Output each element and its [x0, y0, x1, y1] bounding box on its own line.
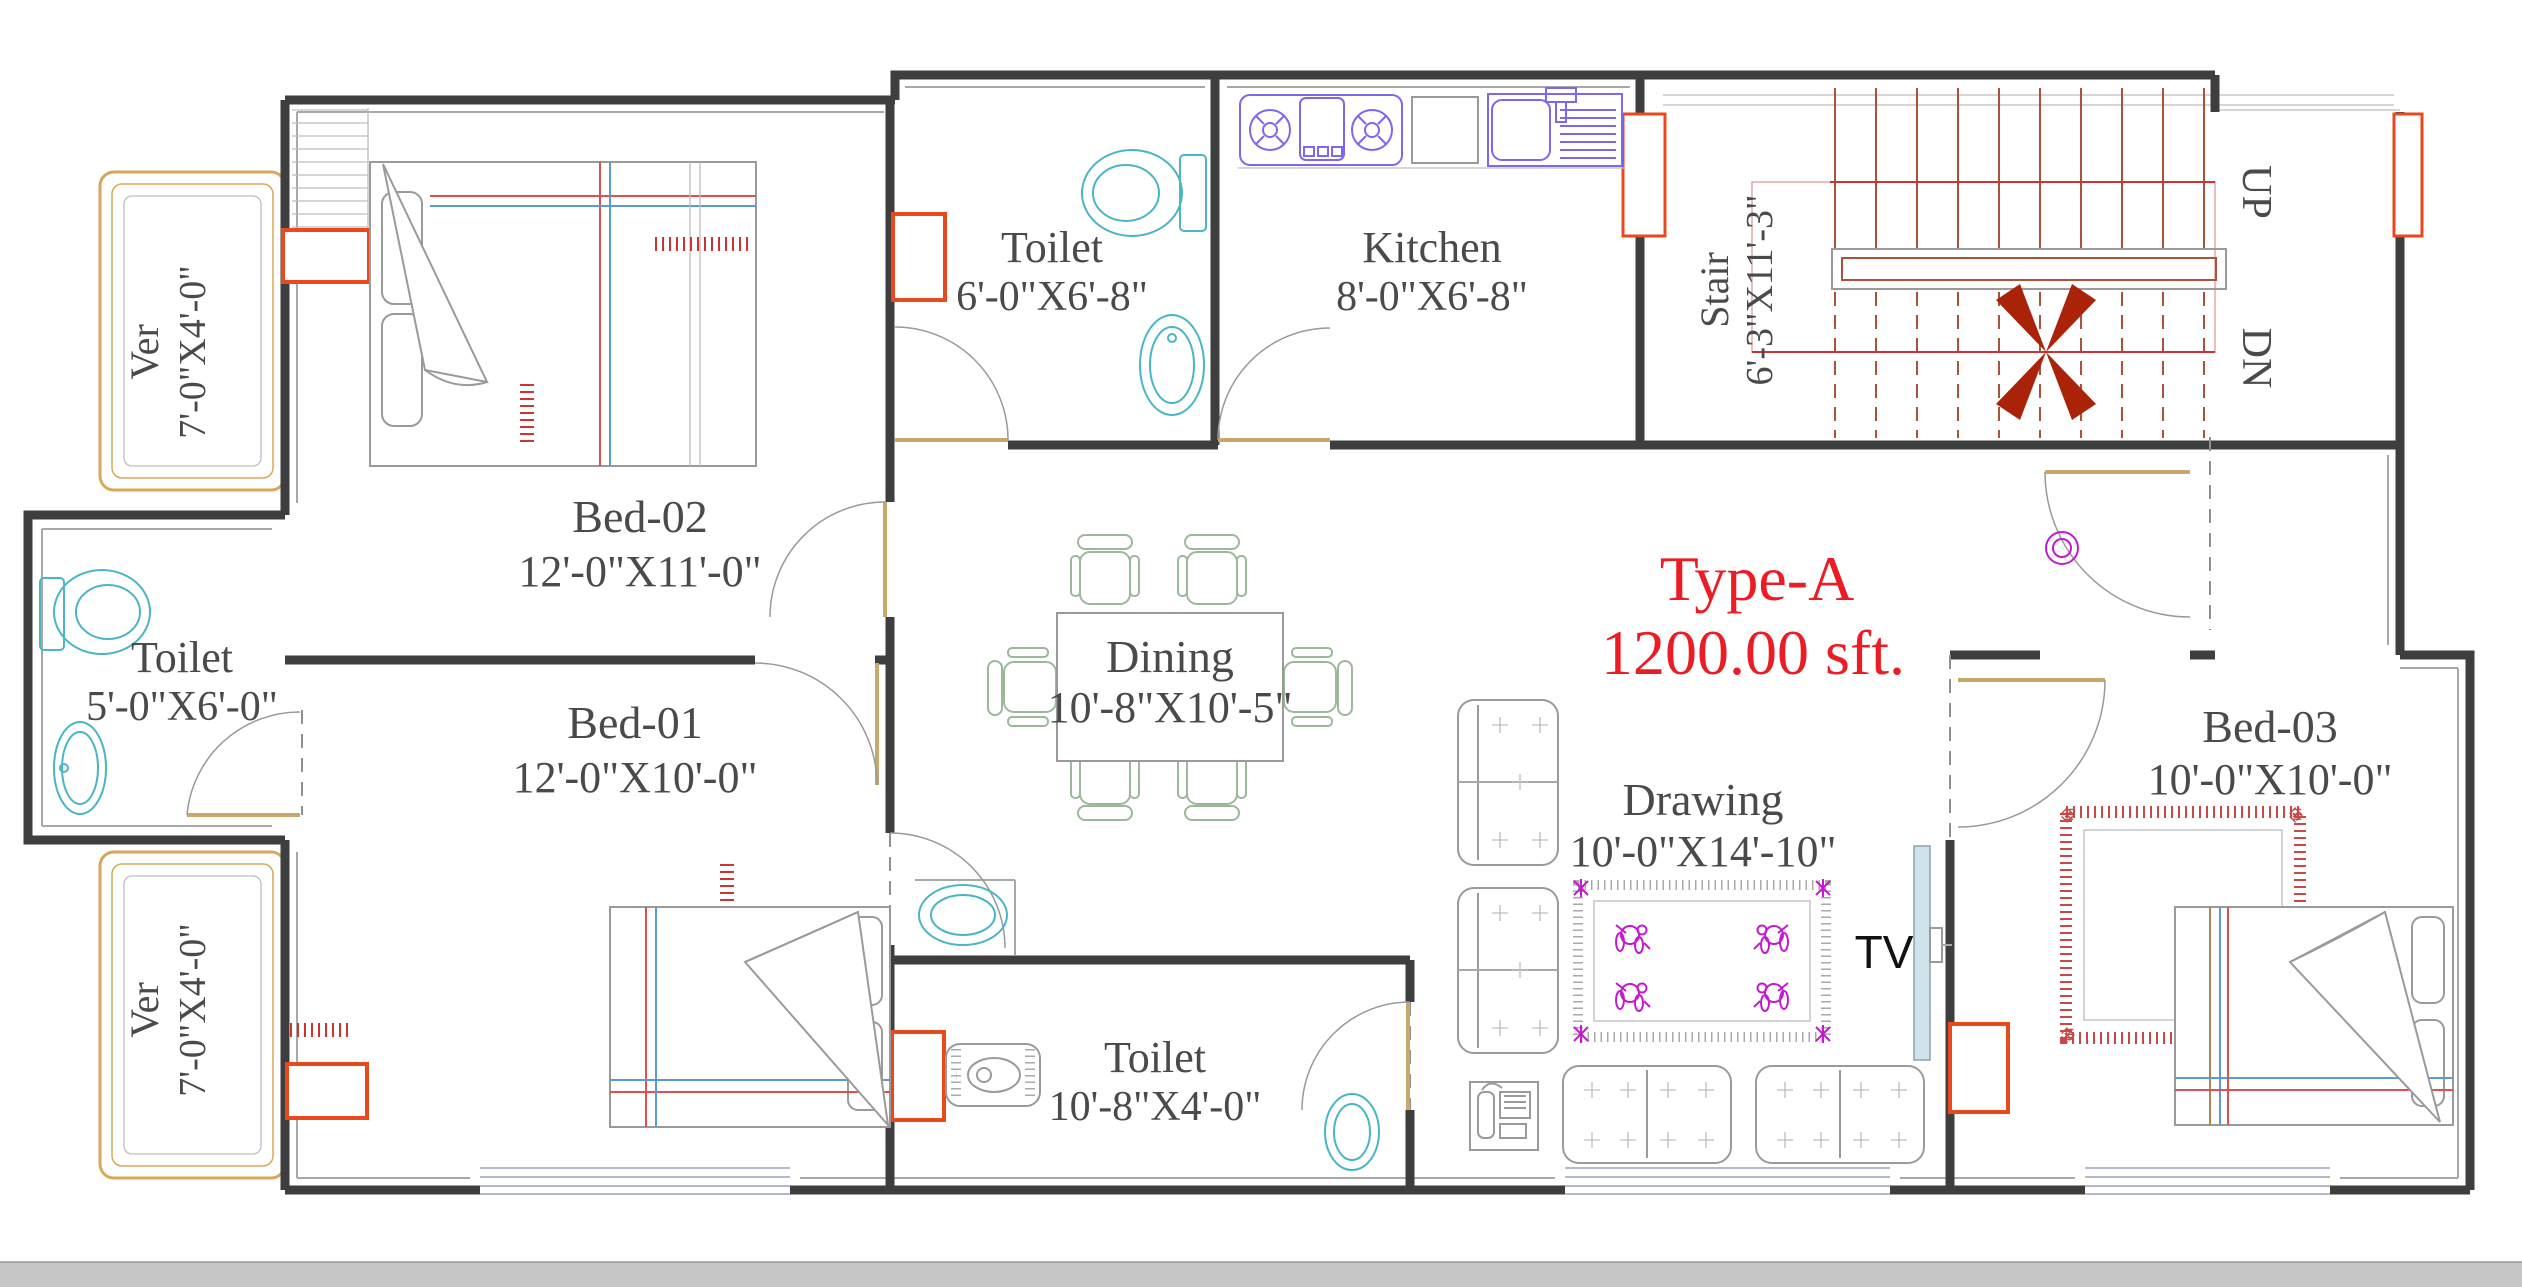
kitchen-counter: [1238, 88, 1625, 168]
ver-top-dims: 7'-0"X4'-0": [172, 265, 214, 438]
sofa-icon: [1458, 700, 1558, 865]
basin-icon: [1325, 1094, 1379, 1170]
sink-icon: [1488, 88, 1622, 166]
dining-dims: 10'-8"X10'-5": [1048, 683, 1293, 732]
drawing-dims: 10'-0"X14'-10": [1570, 827, 1837, 876]
stair-block: [1752, 88, 2226, 438]
stair-dn-label: DN: [2233, 328, 2279, 389]
ver-bottom-dims: 7'-0"X4'-0": [172, 923, 214, 1096]
bed03-door: [1958, 680, 2105, 827]
ver-bottom-label: Ver: [122, 982, 167, 1038]
bed02-label: Bed-02: [572, 491, 707, 542]
kitchen-door: [1218, 328, 1330, 440]
toilet-left-dims: 5'-0"X6'-0": [86, 684, 278, 730]
toilet-top-label: Toilet: [1001, 223, 1103, 272]
bed02-door: [770, 502, 885, 617]
stair-dims: 6'-3"X11'-3": [1739, 194, 1781, 385]
tv-label: TV: [1855, 926, 1914, 978]
dining-label: Dining: [1106, 631, 1234, 682]
bottom-border-strip: [0, 1262, 2522, 1287]
dining-furniture: [919, 535, 1352, 945]
basin-icon: [54, 722, 106, 814]
bed03-label: Bed-03: [2202, 701, 2337, 752]
kitchen-label: Kitchen: [1362, 223, 1501, 272]
floor-plan-drawing: Ver 7'-0"X4'-0" Bed-02 12'-0"X11'-0" Toi…: [0, 0, 2522, 1287]
basin-icon: [919, 885, 1007, 945]
sofa-icon: [1458, 888, 1558, 1053]
bed03-furniture: [2064, 809, 2453, 1125]
bed01-door: [755, 663, 877, 785]
bed02-furniture: [370, 162, 756, 466]
telephone-table: [1470, 1082, 1538, 1150]
bed01-furniture: [290, 864, 890, 1127]
sofa-icon: [1563, 1066, 1731, 1163]
kitchen-dims: 8'-0"X6'-8": [1336, 274, 1528, 320]
entry-door: [2045, 472, 2190, 617]
plan-title: Type-A: [1660, 543, 1855, 614]
bed01-label: Bed-01: [567, 697, 702, 748]
floor-plan-page: Ver 7'-0"X4'-0" Bed-02 12'-0"X11'-0" Toi…: [0, 0, 2522, 1287]
drawing-label: Drawing: [1623, 774, 1784, 825]
stove-icon: [1240, 95, 1402, 165]
bed02-dims: 12'-0"X11'-0": [518, 547, 761, 596]
counter-board: [1412, 97, 1478, 163]
ver-top-label: Ver: [122, 324, 167, 380]
stair-rail: [1832, 249, 2226, 289]
basin-icon: [1140, 315, 1204, 415]
bed03-dims: 10'-0"X10'-0": [2148, 755, 2393, 804]
ledge-hatch: [292, 108, 368, 230]
toilet-bottom-label: Toilet: [1104, 1033, 1206, 1082]
toilet-top-dims: 6'-0"X6'-8": [956, 274, 1148, 320]
stair-treads-up: [1835, 88, 2204, 248]
squat-pan-icon: [946, 1044, 1040, 1106]
plan-area: 1200.00 sft.: [1601, 617, 1905, 688]
sofa-icon: [1756, 1066, 1924, 1163]
ceiling-fan-icon: [2046, 532, 2078, 564]
toilet-top-door: [895, 327, 1008, 440]
toilet-bottom-dims: 10'-8"X4'-0": [1049, 1084, 1262, 1130]
toilet-left-label: Toilet: [131, 633, 233, 682]
stair-label: Stair: [1692, 252, 1737, 328]
bed01-dims: 12'-0"X10'-0": [513, 753, 758, 802]
stair-up-label: UP: [2233, 165, 2279, 219]
rug: [1574, 879, 1830, 1043]
